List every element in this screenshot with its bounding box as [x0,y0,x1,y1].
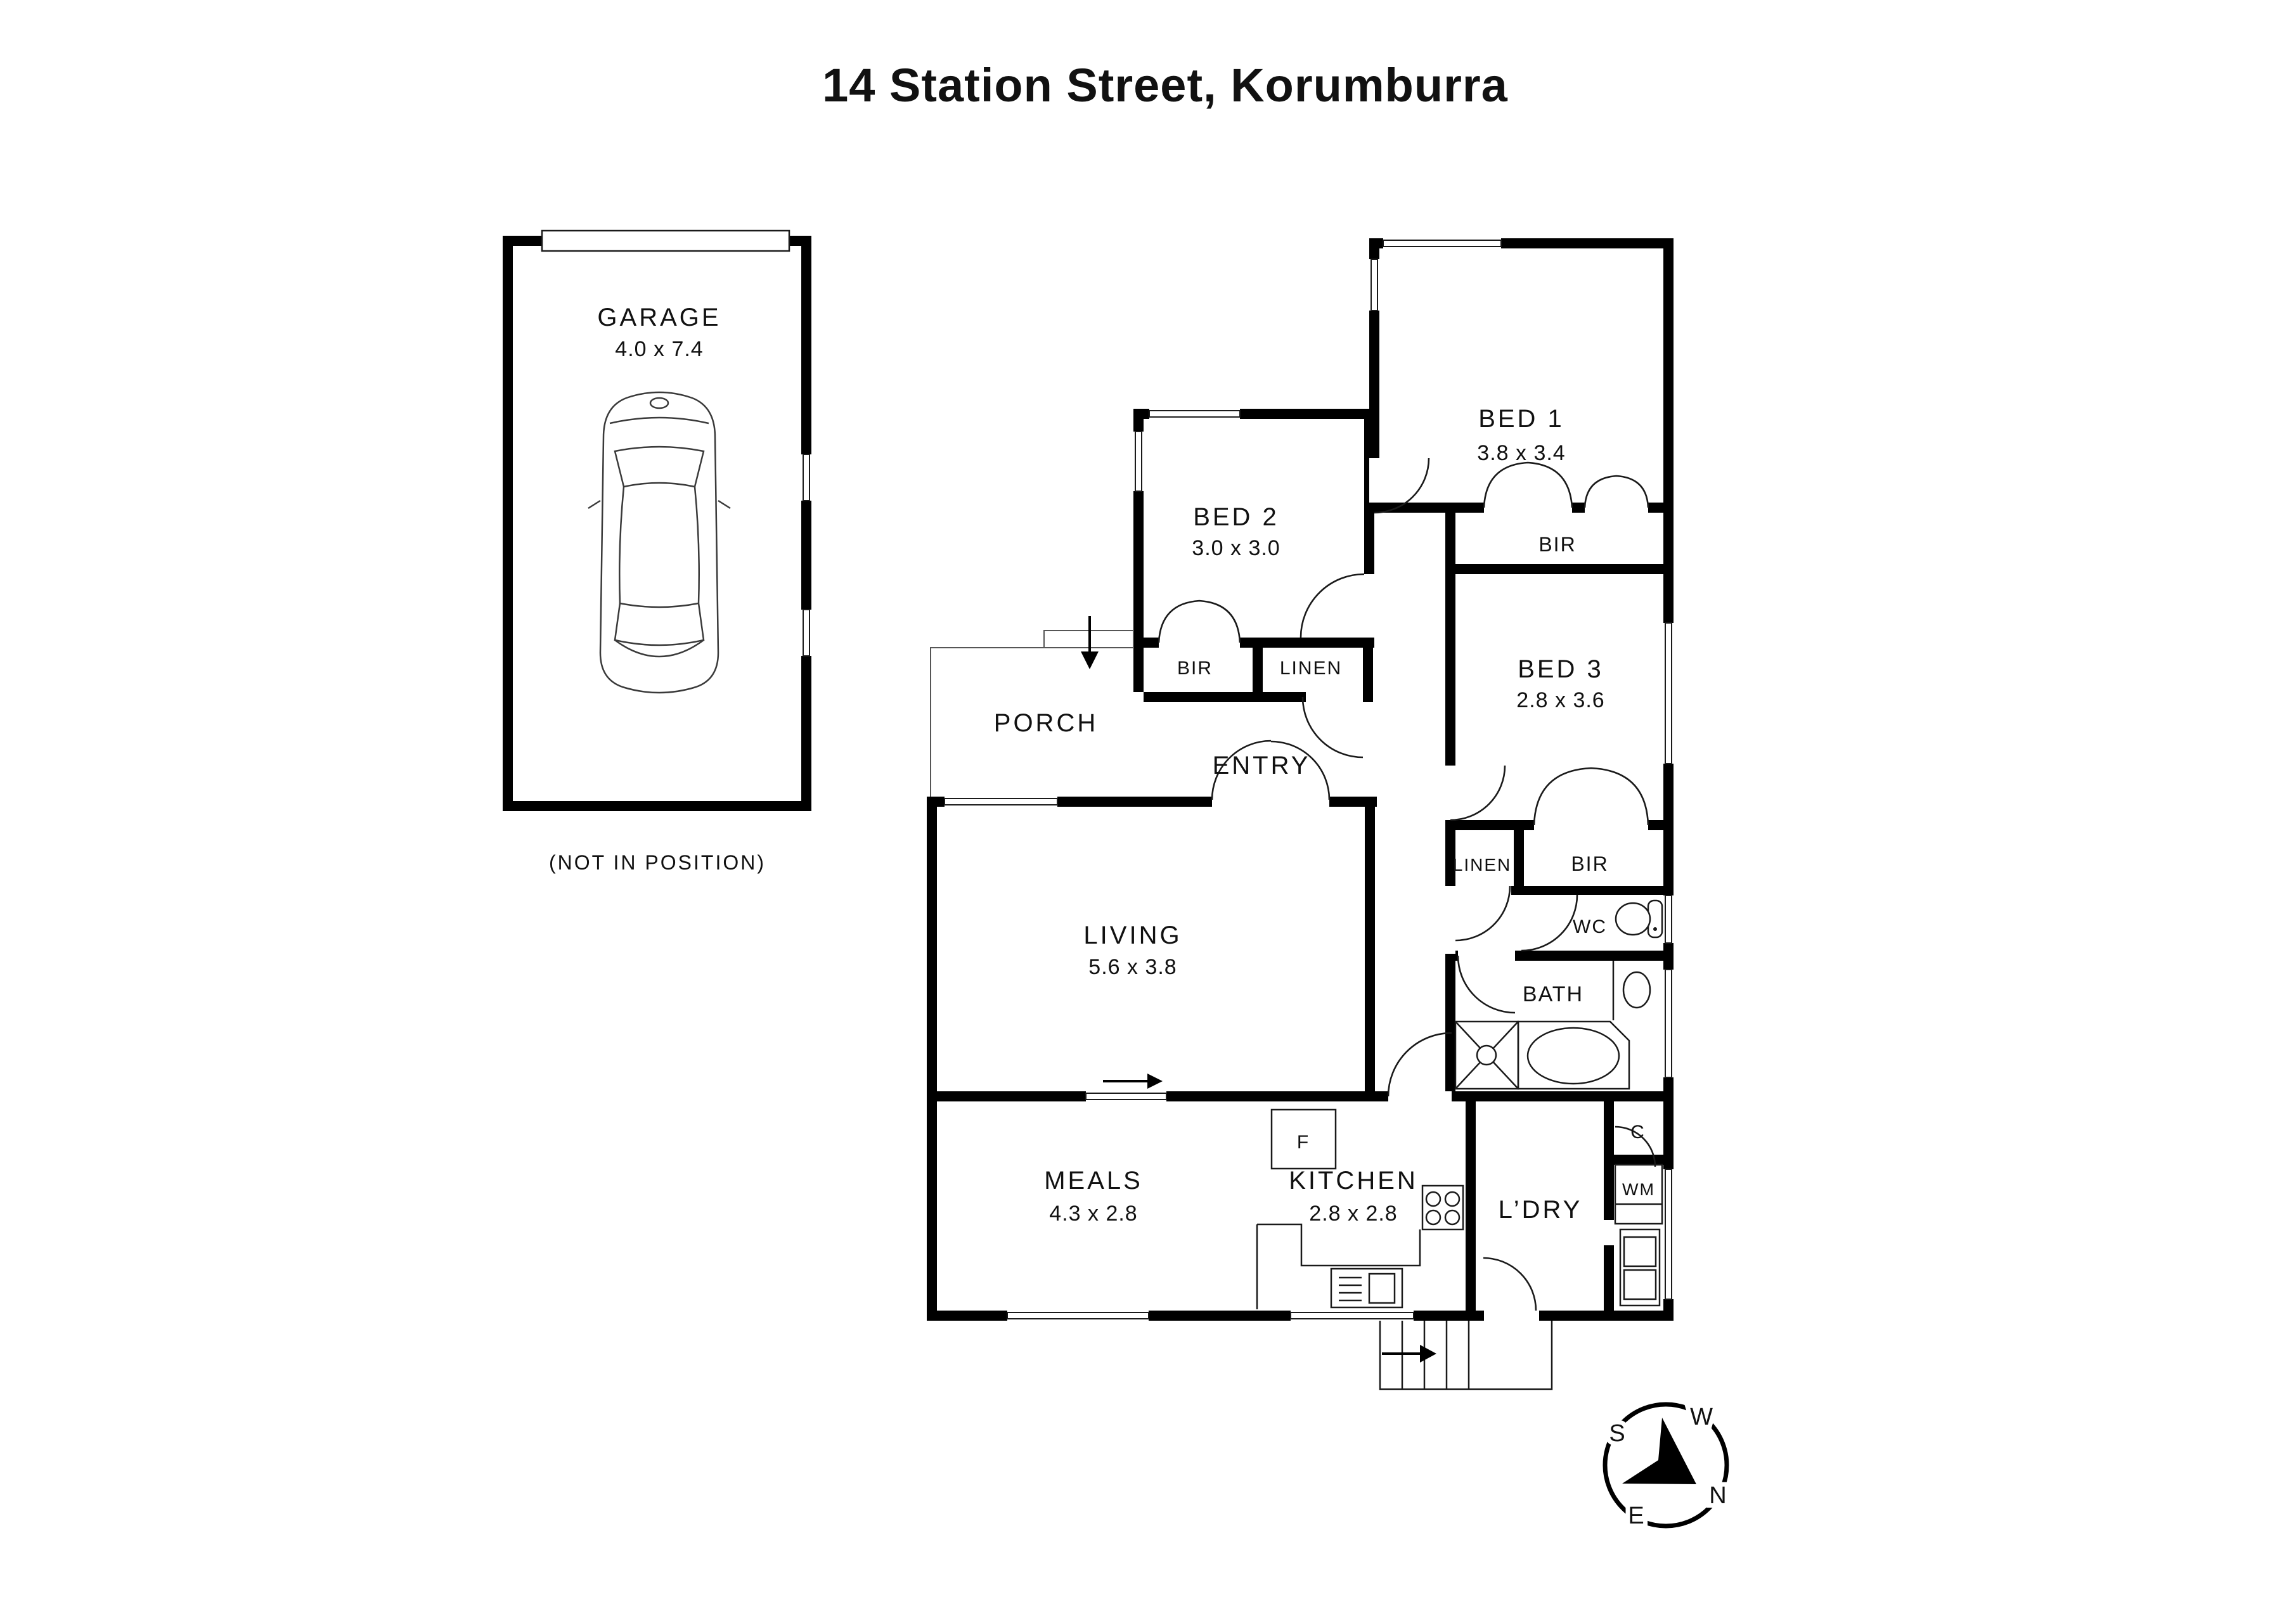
living-dims: 5.6 x 3.8 [1088,955,1177,979]
hall-linen-door-arc [1455,886,1510,940]
linen-hall-label: LINEN [1453,855,1511,875]
bed1-label: BED 1 [1478,405,1564,433]
garage-window [801,454,811,501]
bir-bed1-label: BIR [1538,533,1576,556]
bed2-door-arc [1301,574,1364,638]
windows-layer [945,237,1675,1322]
floor-plan-svg: 14 Station Street, Korumburra GARAGE 4.0… [0,0,2296,1623]
stove-icon [1422,1186,1463,1229]
bed1-bir-bifold-arc [1484,463,1572,508]
bed2-bir-bifold-arc [1159,601,1240,643]
wc-label: WC [1573,916,1607,937]
compass-letter-s: S [1609,1420,1625,1447]
bed1-dims: 3.8 x 3.4 [1477,441,1565,465]
porch-label: PORCH [994,709,1098,737]
bed2-label: BED 2 [1193,503,1279,531]
bir-bed3-label: BIR [1571,852,1608,875]
cupboard-label: C [1630,1122,1646,1143]
bir-entry-label: BIR [1177,658,1213,679]
meals-label: MEALS [1044,1167,1143,1195]
bath-door-arc [1458,956,1515,1013]
kitchen-bench [1257,1224,1420,1309]
hall-kitchen-door-arc [1388,1033,1452,1096]
bed2-dims: 3.0 x 3.0 [1192,536,1280,560]
bed3-bir-bifold-arc [1534,768,1648,825]
window [1007,1309,1149,1322]
window [1291,1309,1414,1322]
linen-entry-label: LINEN [1280,658,1342,679]
window [1132,432,1145,491]
window [1662,970,1675,1077]
compass-letter-n: N [1709,1482,1726,1509]
window [1662,895,1675,943]
stairs-arrow-icon [1382,1345,1436,1363]
garage-room: GARAGE 4.0 x 7.4 (NOT IN POSITION) [503,231,811,874]
fridge-label: F [1297,1132,1310,1153]
floor-plan-page: 14 Station Street, Korumburra GARAGE 4.0… [0,0,2296,1623]
window [1368,259,1381,311]
garage-label: GARAGE [597,304,721,331]
shower-icon [1455,1022,1518,1089]
window [1383,237,1501,250]
compass-needle [1622,1418,1696,1484]
sliding-door [1086,1090,1166,1103]
page-title: 14 Station Street, Korumburra [822,59,1508,112]
garage-door [542,231,789,251]
laundry-label: L’DRY [1499,1196,1583,1224]
laundry-external-door-arc [1483,1258,1536,1311]
compass-letter-e: E [1628,1503,1644,1529]
kitchen-label: KITCHEN [1289,1167,1418,1195]
compass-letter-w: W [1690,1404,1713,1430]
kitchen-dims: 2.8 x 2.8 [1309,1202,1397,1226]
bed3-dims: 2.8 x 3.6 [1516,688,1604,712]
entry-arrow-icon [1081,616,1099,669]
garage-dims: 4.0 x 7.4 [615,337,703,361]
kitchen-sink-icon [1331,1269,1402,1307]
bathtub-icon [1518,1022,1629,1089]
wc-door-arc [1521,895,1577,951]
meals-dims: 4.3 x 2.8 [1049,1202,1137,1226]
compass-icon: W S N E [1605,1404,1727,1529]
toilet-icon [1616,901,1662,937]
entry-linen-door-arc [1303,697,1363,757]
washing-machine-label: WM [1622,1180,1655,1199]
window [1149,407,1240,420]
vanity-sink-icon [1613,961,1650,1020]
laundry-trough-icon [1620,1229,1660,1305]
living-label: LIVING [1083,921,1182,949]
slider-arrow-icon [1103,1074,1163,1089]
walls-layer [927,238,1674,1321]
window [1662,1169,1675,1299]
window [945,795,1057,808]
bath-label: BATH [1523,982,1583,1006]
bed3-door-arc [1450,766,1505,820]
bed3-label: BED 3 [1518,655,1604,683]
entry-label: ENTRY [1213,752,1311,779]
not-in-position-note: (NOT IN POSITION) [549,851,766,874]
window [1662,623,1675,764]
garage-window [801,610,811,656]
